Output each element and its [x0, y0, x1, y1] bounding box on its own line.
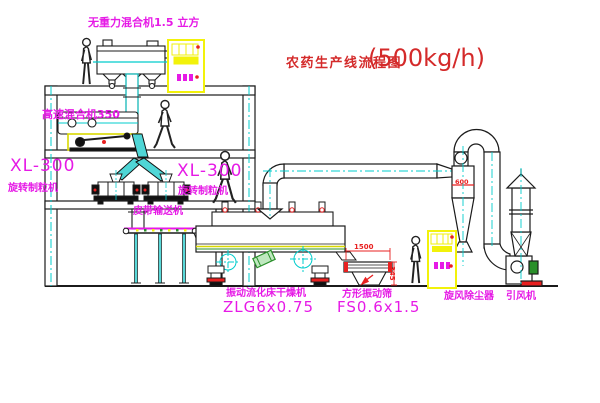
exhaust-duct [258, 164, 452, 219]
feed-pipe-vertical [123, 74, 141, 114]
label-granulator-left-model: XL-300 [10, 158, 75, 175]
person-second-floor [154, 101, 175, 149]
control-cabinet-2 [428, 231, 456, 288]
label-granulator-mid-model: XL-300 [177, 163, 242, 180]
induced-draft-fan [506, 256, 542, 286]
label-dryer-model: ZLG6x0.75 [223, 300, 314, 315]
label-granulator-mid-name: 旋转制粒机 [178, 187, 228, 197]
label-high-speed-mixer: 高速混合机350 [42, 109, 120, 120]
dim-sieve-length: 1500 [354, 243, 373, 251]
person-top-floor [82, 38, 92, 84]
belt-conveyor [123, 228, 198, 283]
process-flow-diagram: 农药生产线流程图 (500kg/h) 无重力混合机1.5 立方 高速混合机350… [0, 0, 600, 403]
label-gravity-mixer: 无重力混合机1.5 立方 [88, 17, 199, 28]
green-drum [253, 250, 275, 268]
dim-sieve-height: 345 [388, 266, 396, 281]
dim-cyclone-body: 600 [455, 178, 469, 186]
fan-downpipe [484, 152, 510, 270]
person-near-sieve [411, 236, 421, 283]
label-sieve-model: FS0.6x1.5 [337, 300, 420, 315]
label-granulator-left-name: 旋转制粒机 [8, 184, 58, 194]
label-belt-conveyor: 皮带输送机 [133, 207, 183, 217]
diagram-capacity: (500kg/h) [368, 44, 485, 72]
control-cabinet-1 [168, 40, 204, 92]
granulator-left [92, 170, 140, 204]
label-fan: 引风机 [506, 292, 536, 302]
label-cyclone: 旋风除尘器 [444, 292, 494, 302]
